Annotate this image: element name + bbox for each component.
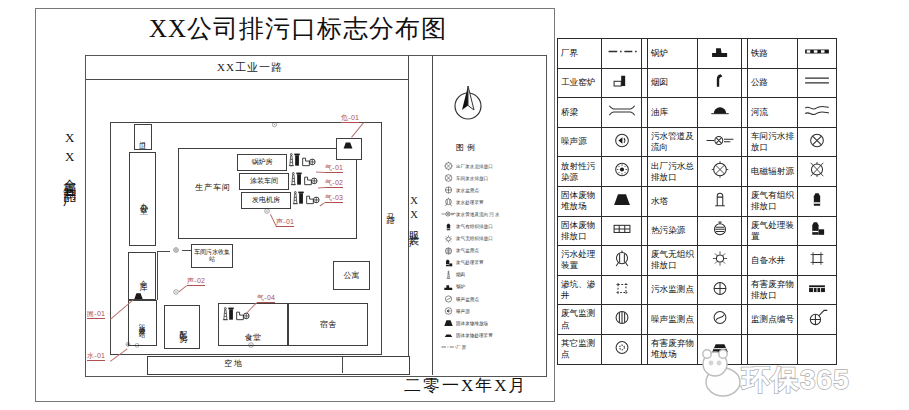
map-legend-item: 烟囱 <box>440 269 544 281</box>
legend-symbol-sewer-pipe-flow-icon <box>698 127 742 157</box>
drawing-canvas: XX公司排污口标志分布图 XX工业一路 XX金属制品厂 马路 XX服装厂 二零一… <box>0 0 909 410</box>
legend-symbol-boundary-line-icon <box>602 39 642 69</box>
map-legend-item: 废气无组织排放口 <box>440 233 544 245</box>
legend-label: 有害废弃物排放口 <box>748 275 798 305</box>
map-legend-item: 废水处理装置 <box>440 196 544 208</box>
map-legend-item-label: 车间废水排放口 <box>456 176 488 181</box>
legend-label: 公路 <box>748 68 798 98</box>
gas-treatment-icon <box>440 258 456 268</box>
legend-table-row: 固体废物排放口热污染源废气处理装置 <box>558 216 837 246</box>
factory-boundary <box>110 122 382 355</box>
legend-label: 自备水井 <box>748 246 798 276</box>
map-legend-item-label: 厂 界 <box>456 345 466 350</box>
legend-table-row: 放射性污染源出厂污水总排放口电磁辐射源 <box>558 157 837 187</box>
legend-label: 桥梁 <box>558 98 602 128</box>
legend-symbol-noise-source-icon <box>602 127 642 157</box>
legend-table-row: 渗坑、渗井污水监测点有害废弃物排放口 <box>558 275 837 305</box>
legend-symbol-chimney-curved-icon <box>698 68 742 98</box>
noise-monitor-icon <box>440 294 456 304</box>
legend-label: 电磁辐射源 <box>748 157 798 187</box>
map-legend-item: 固体废物处理装置 <box>440 329 544 341</box>
map-legend: 图例 出厂废水总排放口车间废水排放口废水监测点废水处理装置废水管道及流向 污 水… <box>440 142 544 354</box>
legend-table: 厂界锅炉铁路工业窑炉烟囱公路桥梁油库河流噪声源污水管道及流向车间污水排放口放射性… <box>557 38 837 365</box>
legend-symbol-solid-waste-outlet-icon <box>602 216 642 246</box>
map-legend-item: 固体废物堆放场 <box>440 317 544 329</box>
map-legend-title: 图例 <box>456 142 544 153</box>
solid-waste-icon <box>440 318 456 328</box>
map-legend-item: 出厂废水总排放口 <box>440 160 544 172</box>
legend-label: 污水监测点 <box>648 275 698 305</box>
map-legend-items: 出厂废水总排放口车间废水排放口废水监测点废水处理装置废水管道及流向 污 水废气有… <box>440 160 544 354</box>
legend-symbol-water-tower-icon <box>698 186 742 216</box>
legend-label: 噪声监测点 <box>648 305 698 335</box>
legend-symbol-boiler-icon <box>698 39 742 69</box>
legend-symbol-oil-depot-icon <box>698 98 742 128</box>
legend-label: 污水管道及流向 <box>648 127 698 157</box>
boundary-line-icon <box>440 342 456 352</box>
map-legend-item: 废气监测点 <box>440 245 544 257</box>
map-legend-item: 废水管道及流向 污 水 <box>440 208 544 220</box>
legend-symbol-water-monitor-icon <box>698 275 742 305</box>
legend-symbol-em-radiation-icon <box>798 157 837 187</box>
legend-table-row: 桥梁油库河流 <box>558 98 837 128</box>
map-legend-item-label: 废气监测点 <box>456 248 479 253</box>
map-legend-item-label: 烟囱 <box>456 272 465 277</box>
top-road-label: XX工业一路 <box>160 60 340 75</box>
map-legend-item: 噪声源 <box>440 305 544 317</box>
legend-label: 烟囱 <box>648 68 698 98</box>
map-legend-item-label: 固体废物堆放场 <box>456 321 488 326</box>
map-legend-item-label: 固体废物处理装置 <box>456 333 493 338</box>
right-factory-label: XX服装厂 <box>408 195 420 232</box>
map-legend-item-label: 锅炉 <box>456 284 465 289</box>
legend-symbol-sewage-treatment-icon <box>602 246 642 276</box>
sewage-treatment-icon <box>440 197 456 207</box>
legend-label: 放射性污染源 <box>558 157 602 187</box>
map-legend-item-label: 废气处理装置 <box>456 260 484 265</box>
legend-symbol-circle-x-icon <box>798 127 837 157</box>
legend-symbol-radioactive-icon <box>602 157 642 187</box>
legend-table-row: 固体废物堆放场水塔废气有组织排放口 <box>558 186 837 216</box>
map-legend-item-label: 废水处理装置 <box>456 200 484 205</box>
legend-symbol-hazwaste-outlet-icon <box>798 275 837 305</box>
legend-label: 锅炉 <box>648 39 698 69</box>
legend-symbol-river-icon <box>798 98 837 128</box>
legend-symbol-gas-stack-icon <box>798 186 837 216</box>
legend-label: 废气监测点 <box>558 305 602 335</box>
map-legend-item: 废水监测点 <box>440 184 544 196</box>
legend-symbol-solid-waste-icon <box>602 186 642 216</box>
legend-symbol-bridge-icon <box>602 98 642 128</box>
map-legend-item: 锅炉 <box>440 281 544 293</box>
legend-label: 热污染源 <box>648 216 698 246</box>
legend-symbol-kiln-icon <box>602 68 642 98</box>
legend-label: 污水处理装置 <box>558 246 602 276</box>
legend-label: 废气处理装置 <box>748 216 798 246</box>
legend-symbol-gas-treatment-icon <box>798 216 837 246</box>
legend-label: 出厂污水总排放口 <box>648 157 698 187</box>
legend-divider <box>432 55 433 375</box>
legend-label: 其它监测点 <box>558 334 602 364</box>
gas-stack-icon <box>440 222 456 232</box>
legend-table-row: 噪声源污水管道及流向车间污水排放口 <box>558 127 837 157</box>
map-legend-item: 厂 界 <box>440 341 544 353</box>
top-road-line <box>86 79 408 80</box>
legend-table-row: 废气监测点噪声监测点监测点编号 <box>558 305 837 335</box>
map-legend-item-label: 废气无组织排放口 <box>456 236 493 241</box>
watermark-logo: 环保365 <box>686 340 858 404</box>
legend-label: 水塔 <box>648 186 698 216</box>
date-label: 二零一X年X月 <box>404 374 528 397</box>
map-legend-item: 废气处理装置 <box>440 257 544 269</box>
water-monitor-icon <box>440 185 456 195</box>
map-legend-item-label: 噪声监测点 <box>456 297 479 302</box>
legend-symbol-road-icon <box>798 68 837 98</box>
legend-label: 河流 <box>748 98 798 128</box>
legend-table-row: 污水处理装置废气无组织排放口自备水井 <box>558 246 837 276</box>
legend-symbol-gas-monitor-icon <box>602 305 642 335</box>
map-legend-item-label: 出厂废水总排放口 <box>456 164 493 169</box>
legend-label: 厂界 <box>558 39 602 69</box>
page-title: XX公司排污口标志分布图 <box>138 12 458 45</box>
map-legend-item-label: 废水管道及流向 污 水 <box>456 212 500 217</box>
map-legend-item: 噪声监测点 <box>440 293 544 305</box>
legend-label: 车间污水排放口 <box>748 127 798 157</box>
circle-x-main-icon <box>440 161 456 171</box>
watermark-text: 环保365 <box>741 364 850 395</box>
sewer-pipe-flow-icon <box>440 209 456 219</box>
legend-symbol-thermal-icon <box>698 216 742 246</box>
chimney-tower-icon <box>440 270 456 280</box>
map-legend-item: 车间废水排放口 <box>440 172 544 184</box>
legend-table-body: 厂界锅炉铁路工业窑炉烟囱公路桥梁油库河流噪声源污水管道及流向车间污水排放口放射性… <box>558 39 837 365</box>
legend-label: 油库 <box>648 98 698 128</box>
left-factory-label: XX金属制品厂 <box>62 130 76 305</box>
panda-ear-icon <box>703 350 711 358</box>
legend-symbol-monitor-id-icon <box>798 305 837 335</box>
legend-symbol-noise-monitor-icon <box>698 305 742 335</box>
legend-label: 铁路 <box>748 39 798 69</box>
right-road-label: 马路 <box>386 207 395 211</box>
legend-table-row: 厂界锅炉铁路 <box>558 39 837 69</box>
boiler-icon <box>440 282 456 292</box>
legend-label: 渗坑、渗井 <box>558 275 602 305</box>
compass-icon <box>448 80 488 126</box>
sun-icon <box>440 234 456 244</box>
circle-x-icon <box>440 173 456 183</box>
map-legend-item-label: 废水监测点 <box>456 188 479 193</box>
legend-label: 废气有组织排放口 <box>748 186 798 216</box>
map-legend-item-label: 废气有组织排放口 <box>456 224 493 229</box>
legend-symbol-well-icon <box>798 246 837 276</box>
map-legend-item: 废气有组织排放口 <box>440 220 544 232</box>
gas-monitor-icon <box>440 246 456 256</box>
legend-symbol-seep-pit-icon <box>602 275 642 305</box>
legend-label: 固体废物堆放场 <box>558 186 602 216</box>
legend-label: 废气无组织排放口 <box>648 246 698 276</box>
legend-label: 监测点编号 <box>748 305 798 335</box>
legend-symbol-sun-icon <box>698 246 742 276</box>
legend-symbol-railway-icon <box>798 39 837 69</box>
legend-label: 噪声源 <box>558 127 602 157</box>
solid-waste-flat-icon <box>440 330 456 340</box>
legend-table-row: 工业窑炉烟囱公路 <box>558 68 837 98</box>
legend-label: 工业窑炉 <box>558 68 602 98</box>
legend-symbol-circle-x-main-icon <box>698 157 742 187</box>
legend-symbol-other-monitor-icon <box>602 334 642 364</box>
legend-label: 固体废物排放口 <box>558 216 602 246</box>
noise-source-icon <box>440 306 456 316</box>
map-legend-item-label: 噪声源 <box>456 309 470 314</box>
